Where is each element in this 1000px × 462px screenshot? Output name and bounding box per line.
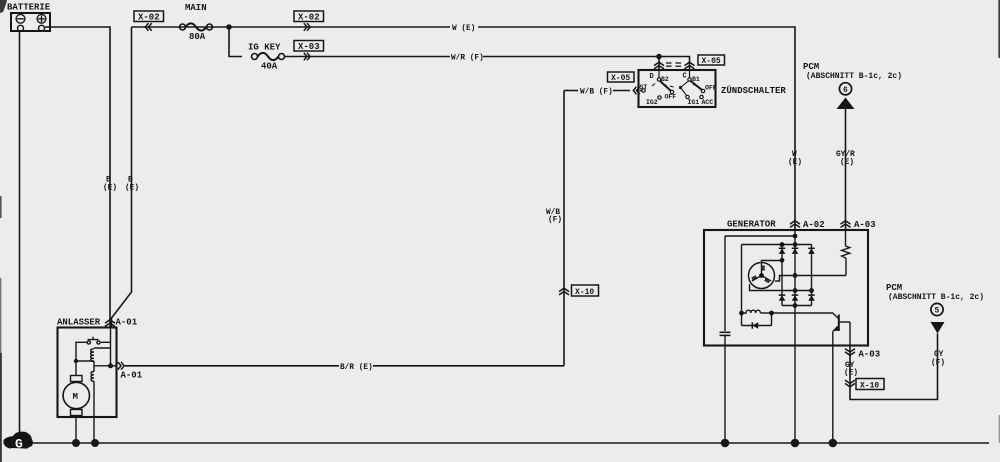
- svg-text:80A: 80A: [189, 32, 206, 42]
- svg-text:ST: ST: [640, 84, 648, 91]
- svg-text:A-01: A-01: [121, 371, 143, 381]
- svg-text:BATTERIE: BATTERIE: [7, 3, 51, 13]
- svg-text:6: 6: [843, 86, 848, 95]
- svg-text:(E): (E): [788, 159, 802, 167]
- svg-text:5: 5: [935, 307, 940, 316]
- svg-text:D: D: [650, 73, 654, 81]
- svg-text:B: B: [128, 177, 133, 185]
- svg-text:(E): (E): [844, 370, 858, 378]
- svg-text:(E): (E): [840, 159, 854, 167]
- svg-text:OFF: OFF: [665, 94, 677, 101]
- svg-text:MAIN: MAIN: [185, 3, 207, 13]
- svg-text:X-05: X-05: [702, 57, 721, 66]
- svg-text:W/B (F): W/B (F): [580, 89, 613, 97]
- svg-text:IG1: IG1: [688, 99, 700, 106]
- svg-text:(F): (F): [548, 217, 562, 225]
- svg-text:G: G: [15, 437, 23, 452]
- svg-text:B1: B1: [692, 76, 700, 83]
- svg-text:IG KEY: IG KEY: [248, 43, 281, 53]
- svg-text:C: C: [683, 73, 687, 81]
- svg-text:X-03: X-03: [298, 42, 320, 52]
- svg-text:B/R (E): B/R (E): [340, 364, 373, 372]
- svg-text:X-05: X-05: [611, 74, 630, 83]
- svg-text:X-10: X-10: [575, 288, 594, 297]
- svg-text:40A: 40A: [261, 62, 278, 72]
- svg-text:IG2: IG2: [646, 99, 658, 106]
- svg-text:(ABSCHNITT B-1c, 2c): (ABSCHNITT B-1c, 2c): [806, 72, 902, 81]
- svg-text:ANLASSER: ANLASSER: [57, 318, 101, 328]
- svg-text:W (E): W (E): [452, 25, 475, 33]
- svg-text:(E): (E): [103, 185, 117, 193]
- svg-text:X-02: X-02: [298, 13, 320, 23]
- svg-text:OFF: OFF: [705, 85, 717, 92]
- svg-text:GY: GY: [934, 351, 944, 359]
- svg-text:X-02: X-02: [138, 13, 160, 23]
- svg-text:W: W: [792, 151, 797, 159]
- svg-text:GY/R: GY/R: [836, 151, 855, 159]
- svg-text:A-03: A-03: [854, 220, 876, 230]
- svg-text:GENERATOR: GENERATOR: [727, 220, 776, 230]
- svg-text:A-02: A-02: [803, 220, 825, 230]
- svg-text:X-10: X-10: [860, 381, 879, 390]
- svg-text:M: M: [73, 392, 78, 402]
- svg-text:PCM: PCM: [803, 62, 819, 72]
- svg-text:B2: B2: [661, 76, 669, 83]
- svg-text:A-03: A-03: [859, 350, 881, 360]
- svg-text:PCM: PCM: [886, 283, 902, 293]
- svg-text:(F): (F): [931, 360, 945, 368]
- svg-text:ACC: ACC: [702, 99, 714, 106]
- svg-text:W/R (F): W/R (F): [451, 55, 484, 63]
- svg-text:B: B: [106, 177, 111, 185]
- svg-text:ZÜNDSCHALTER: ZÜNDSCHALTER: [721, 85, 786, 96]
- svg-text:(E): (E): [125, 185, 139, 193]
- svg-text:(ABSCHNITT B-1c, 2c): (ABSCHNITT B-1c, 2c): [888, 293, 984, 302]
- svg-text:A-01: A-01: [116, 318, 138, 328]
